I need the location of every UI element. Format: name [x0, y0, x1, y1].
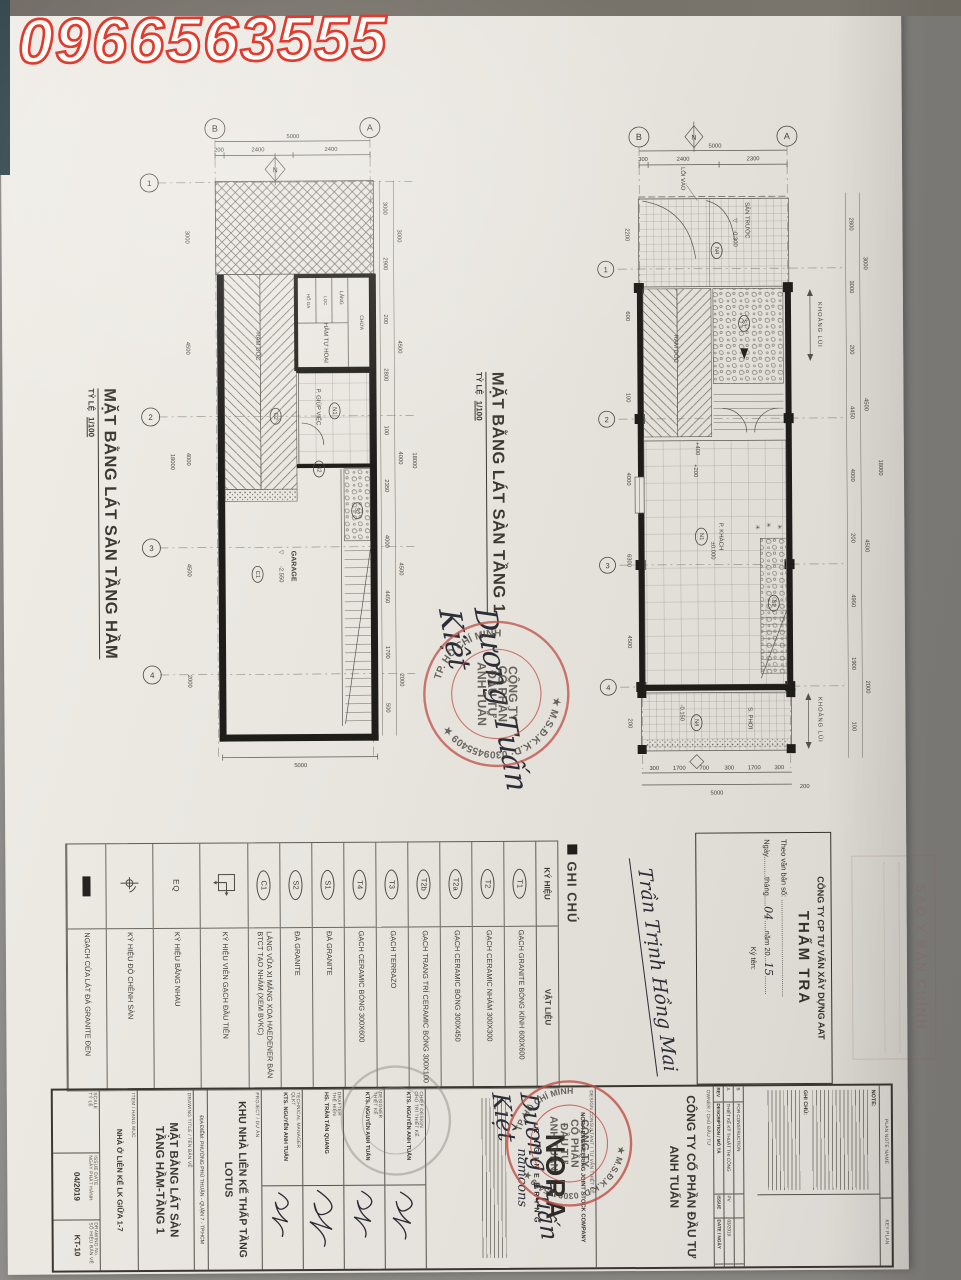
svg-text:4500: 4500	[863, 539, 869, 552]
signature-rows: CHIEF DESIGNCHỦ TRÌ THIẾT KẾKTS. NGUYỄN …	[261, 1088, 426, 1269]
legend-row: T1GẠCH GRANITE BÓNG KÍNH 600X600	[503, 842, 537, 1088]
svg-text:RAM DỐC: RAM DỐC	[672, 335, 679, 364]
svg-text:+200: +200	[692, 464, 698, 477]
legend-row: KÝ HIỆU VIÊN GẠCH ĐẦU TIÊN	[199, 843, 249, 1089]
svg-text:3000: 3000	[183, 231, 189, 244]
svg-text:100: 100	[624, 393, 630, 403]
svg-text:300: 300	[649, 766, 659, 772]
svg-text:2400: 2400	[252, 147, 265, 153]
north-arrow-icon: N	[265, 153, 285, 185]
svg-text:2000: 2000	[398, 674, 404, 687]
svg-text:4: 4	[150, 671, 155, 680]
svg-text:A: A	[784, 131, 790, 141]
scale-date-number-row: SCALETỶ LỆ ISSUE DATENGÀY PHÁT HÀNH 04/2…	[53, 1090, 100, 1270]
svg-text:4500: 4500	[863, 398, 869, 411]
svg-text:RAM DỐC: RAM DỐC	[254, 332, 261, 361]
drawing-title-label: DRAWING TITLE / TÊN BẢN VẼ	[184, 1090, 194, 1270]
svg-text:SÂN TRƯỚC: SÂN TRƯỚC	[743, 202, 750, 239]
svg-text:1: 1	[147, 179, 152, 188]
svg-text:KHOẢNG LÙI: KHOẢNG LÙI	[816, 697, 823, 743]
key-plan-label: KEY PLAN	[880, 1198, 891, 1265]
ghichu-text-lines	[766, 1090, 801, 1190]
basement-right-dims: 3000290020028001002350400044501700500	[381, 202, 390, 713]
svg-text:2400: 2400	[677, 157, 690, 163]
svg-text:18000: 18000	[877, 459, 883, 475]
svg-text:1900: 1900	[850, 657, 856, 670]
plan-note-name-label: PLAN NOTE NAME	[880, 1085, 892, 1198]
svg-text:2000: 2000	[864, 681, 870, 694]
north-arrow-icon: N	[685, 122, 703, 152]
director-signature-titleblock: Dương Tuấn Kiệt	[495, 1092, 556, 1272]
svg-text:N: N	[691, 135, 696, 142]
sign-row: CHIEF DESIGNCHỦ TRÌ THIẾT KẾKTS. NGUYỄN …	[384, 1088, 426, 1268]
setback-note-1: KHOẢNG LÙI	[807, 289, 823, 361]
drawing-title-2: TẦNG HẦM-TẦNG 1	[153, 1090, 166, 1270]
floor1-plan-svg: B A 1 2 3 4 N 5000 300 2400 2300	[593, 107, 909, 809]
svg-text:HỐ GA: HỐ GA	[306, 294, 312, 309]
reviewer-company: CÔNG TY CP TƯ VẤN XÂY DỰNG AAT	[815, 839, 826, 1077]
svg-text:S. PHƠI: S. PHƠI	[746, 707, 752, 730]
svg-text:2000: 2000	[186, 675, 192, 688]
floor1-top-dims: 300 2400 2300	[638, 156, 759, 163]
photo-of-drawing: B A 1 2 3 4 N 5000 200 2400 2400	[0, 0, 961, 1280]
svg-text:4000: 4000	[397, 452, 403, 465]
svg-text:4500: 4500	[626, 635, 632, 648]
project-name-1: KHU NHÀ LIÊN KẾ THẤP TẦNG	[236, 1089, 249, 1269]
front-yard: LỐI VÀO SÂN TRƯỚC -0.300 ▽ N4	[638, 167, 789, 288]
item-label: ITEM / HẠNG MỤC	[128, 1090, 138, 1270]
svg-text:4500: 4500	[398, 563, 404, 576]
svg-text:N: N	[273, 167, 278, 174]
svg-text:4950: 4950	[850, 594, 856, 607]
svg-text:2400: 2400	[325, 147, 338, 153]
floor1-right-dims: 280030002004450400020049501900100	[847, 218, 856, 732]
svg-text:B: B	[636, 132, 642, 142]
garage-room: GARAGE -2.550 ▽ C1	[252, 550, 297, 583]
svg-text:-0.150: -0.150	[678, 705, 684, 721]
svg-text:4450: 4450	[849, 406, 855, 419]
svg-text:4500: 4500	[396, 341, 402, 354]
svg-text:300: 300	[774, 765, 784, 771]
basement-ramp: RAM DỐC C2	[224, 274, 297, 501]
svg-text:P. KHÁCH: P. KHÁCH	[717, 523, 724, 551]
tham-tra-line1: Theo văn bản số: .......................…	[779, 839, 789, 1077]
basement-right-dims2: 30004500400045002000	[395, 230, 404, 687]
svg-text:100: 100	[383, 425, 389, 435]
note-text-lines	[810, 1090, 869, 1190]
svg-text:1700: 1700	[748, 765, 761, 771]
paper-sheet: B A 1 2 3 4 N 5000 200 2400 2400	[0, 0, 961, 1280]
legend-row: T3GẠCH TERRAZO	[375, 842, 409, 1088]
legend-title: GHI CHÚ	[558, 840, 589, 1090]
svg-text:B: B	[212, 124, 218, 134]
svg-text:3000: 3000	[395, 230, 401, 243]
svg-text:200: 200	[626, 719, 632, 729]
svg-text:N4: N4	[693, 719, 699, 727]
drawing-title-1: MẶT BẰNG LÁT SÀN	[167, 1090, 180, 1270]
legend-row: T2bGẠCH TRANG TRÍ CERAMIC BÓNG 300X100	[407, 842, 441, 1088]
svg-text:▽: ▽	[277, 550, 283, 555]
legend-row: T2GẠCH CERAMIC NHÁM 300X300	[471, 842, 505, 1088]
pavement-hatch	[215, 181, 374, 275]
location-line: ĐỊA ĐIỂM: PHƯỜNG PHÚ THUẬN - QUẬN 7 - TP…	[193, 1090, 208, 1270]
svg-text:3000: 3000	[848, 280, 854, 293]
svg-text:2200: 2200	[623, 228, 629, 241]
septic-tank: HỐ GA LỌC LẮNG HẦM TỰ HOẠI CHỨA	[296, 276, 374, 369]
basement-left-dims: 30004500400045002000	[183, 231, 192, 688]
svg-text:A: A	[367, 123, 373, 133]
svg-text:4500: 4500	[186, 564, 192, 577]
svg-text:4000: 4000	[849, 469, 855, 482]
legend-col-material: VẬT LIỆU	[537, 927, 559, 1088]
revision-table: BFOR CONSTRUCTIONATHIẾT KẾ KỸ THUẬT THI …	[713, 1086, 744, 1266]
svg-text:4000: 4000	[383, 535, 389, 548]
svg-text:5000: 5000	[294, 763, 307, 769]
basement-plan-svg: B A 1 2 3 4 N 5000 200 2400 2400	[127, 110, 461, 802]
svg-text:CHỨA: CHỨA	[358, 315, 365, 331]
svg-text:1700: 1700	[673, 766, 686, 772]
svg-text:300: 300	[638, 157, 648, 163]
floor-level-icon	[118, 875, 140, 897]
svg-text:2350: 2350	[383, 479, 389, 492]
legend-row: NGẠCH CỬA LÁT ĐÁ GRANITE ĐEN	[66, 844, 107, 1090]
svg-text:HẦM TỰ HOẠI: HẦM TỰ HOẠI	[322, 323, 329, 363]
first-tile-icon	[211, 872, 237, 898]
sign-row: TECHNICAL MANAGERQLKTKTS. NGUYỄN ANH TUẤ…	[261, 1089, 303, 1269]
svg-text:4000: 4000	[185, 453, 191, 466]
entry-stair: S1	[713, 288, 784, 432]
signature-squiggle	[309, 1186, 343, 1264]
item-section: ITEM / HẠNG MỤC NHÀ Ở LIÊN KẾ LK GIỮA 1-…	[99, 1090, 138, 1270]
legend-row: S1ĐÁ GRANITE	[311, 843, 345, 1089]
drying-yard: S. PHƠI N4 -0.150	[637, 688, 795, 754]
project-label: PROJECT / DỰ ÁN	[252, 1089, 262, 1269]
svg-text:4: 4	[606, 683, 610, 692]
svg-text:500: 500	[384, 703, 390, 713]
svg-text:S2: S2	[770, 600, 776, 607]
legend-col-symbol: KÝ HIỆU	[536, 842, 558, 927]
svg-text:300: 300	[724, 765, 734, 771]
owner-name-2: ANH TUẤN	[667, 1087, 682, 1267]
svg-text:N4: N4	[713, 247, 719, 255]
svg-text:3: 3	[605, 561, 609, 570]
ghichu-header: GHI CHÚ:	[802, 1090, 809, 1190]
title-block: PLAN NOTE NAME KEY PLAN NOTE: GHI CHÚ:	[15, 1083, 894, 1272]
basement-plan-title: MẶT BẰNG LÁT SÀN TẦNG HẦM TỶ LỆ1/100	[74, 388, 120, 718]
project-name-2: LOTUS	[222, 1090, 235, 1270]
sign-label: Ký tên:	[748, 839, 758, 1077]
svg-text:18000: 18000	[169, 454, 175, 470]
phone-watermark: 0966563555	[18, 2, 389, 78]
svg-text:±0.000: ±0.000	[709, 542, 715, 560]
svg-text:18000: 18000	[411, 452, 417, 468]
legend-row: S2ĐÁ GRANITE	[279, 843, 313, 1089]
svg-text:200: 200	[214, 148, 224, 154]
owner-name-1: CÔNG TY CỔ PHẦN ĐẦU TƯ	[684, 1087, 699, 1267]
tham-tra-box: CÔNG TY CP TƯ VẤN XÂY DỰNG AAT THẨM TRA …	[695, 832, 833, 1085]
item-value: NHÀ Ở LIÊN KẾ LK GIỮA 1-7	[115, 1090, 125, 1270]
svg-text:1700: 1700	[384, 646, 390, 659]
basement-top-dims: 200 2400 2400	[214, 147, 337, 154]
svg-text:100: 100	[851, 721, 857, 731]
floor1-ramp: RAM DỐC	[643, 289, 712, 437]
svg-text:200: 200	[800, 784, 810, 790]
legend: GHI CHÚ KÝ HIỆU VẬT LIỆU T1GẠCH GRANITE …	[37, 840, 589, 1093]
director-signature-mid: Dương Tuấn Kiệt	[436, 598, 558, 851]
svg-text:S1: S1	[741, 320, 747, 327]
svg-text:200: 200	[382, 314, 388, 324]
svg-text:LẮNG: LẮNG	[338, 291, 346, 305]
svg-text:S2: S2	[315, 465, 321, 472]
svg-text:-0.300: -0.300	[732, 230, 738, 246]
legend-table: KÝ HIỆU VẬT LIỆU T1GẠCH GRANITE BÓNG KÍN…	[65, 841, 560, 1092]
svg-text:C1: C1	[254, 571, 260, 578]
tham-tra-title: THẨM TRA	[794, 839, 812, 1077]
svg-text:2300: 2300	[747, 156, 760, 162]
svg-text:3000: 3000	[381, 202, 387, 215]
svg-text:✳: ✳	[777, 524, 782, 531]
svg-text:2: 2	[148, 413, 153, 422]
floor1-right-dims2: 3000450045002000	[862, 257, 871, 694]
note-header: NOTE:	[870, 1090, 877, 1190]
svg-text:2800: 2800	[847, 218, 853, 231]
basement-stair: S2	[341, 469, 372, 726]
svg-text:N1: N1	[698, 533, 704, 540]
svg-text:4500: 4500	[184, 342, 190, 355]
legend-row: T2aGẠCH CERAMIC BÓNG 300X450	[439, 842, 473, 1088]
svg-text:✳: ✳	[755, 524, 760, 531]
svg-text:▽: ▽	[731, 218, 737, 223]
svg-text:5000: 5000	[709, 144, 722, 150]
svg-text:4000: 4000	[625, 473, 631, 486]
svg-text:6300: 6300	[625, 554, 631, 567]
signature-squiggle	[350, 1186, 384, 1264]
consultant-label: DESIGN CONSULTANT / TƯ VẤN THIẾT KẾ	[586, 1087, 596, 1267]
svg-text:N1: N1	[331, 407, 337, 414]
floor1-stair: S2	[760, 538, 787, 678]
sign-row: DRAFTERTHỂ HIỆNHS. TRẦN TẤN QUANG	[302, 1089, 344, 1269]
sign-row: DESIGNERTHIẾT KẾKTS. NGUYỄN ANH TUẤN	[343, 1089, 385, 1269]
svg-text:1: 1	[604, 265, 608, 274]
svg-text:5000: 5000	[286, 134, 299, 140]
approver-signature: Trần Trịnh Hồng Mai	[601, 857, 694, 1084]
svg-text:+400: +400	[694, 442, 700, 455]
svg-text:200: 200	[849, 533, 855, 543]
legend-row: EQKÝ HIỆU BẰNG NHAU	[152, 844, 201, 1090]
svg-text:5000: 5000	[710, 791, 723, 797]
svg-text:P. GIÚP VIỆC: P. GIÚP VIỆC	[314, 389, 322, 427]
owner-section: BFOR CONSTRUCTIONATHIẾT KẾ KỸ THUẬT THI …	[595, 1086, 744, 1267]
floor1-left-dims: 2200600100400063004500200	[623, 228, 632, 728]
legend-row: C1LÁNG VỮA XI MĂNG XOA HAEDENER BẢN BTCT…	[247, 843, 281, 1089]
setback-note-2: KHOẢNG LÙI	[805, 693, 823, 749]
svg-text:4450: 4450	[384, 590, 390, 603]
svg-text:LỌC: LỌC	[323, 296, 328, 306]
project-section: PROJECT / DỰ ÁN KHU NHÀ LIÊN KẾ THẤP TẦN…	[207, 1089, 262, 1269]
issue-date: 04/2019	[72, 1155, 81, 1217]
svg-text:200: 200	[848, 345, 854, 355]
owner-label: OWNER / CHỦ ĐẦU TƯ	[704, 1087, 714, 1267]
svg-text:2: 2	[605, 415, 609, 424]
signature-squiggle	[268, 1186, 302, 1264]
svg-text:KHOẢNG LÙI: KHOẢNG LÙI	[816, 302, 823, 348]
drawing-number: KT-10	[73, 1222, 82, 1268]
svg-text:3000: 3000	[862, 257, 868, 270]
svg-text:2800: 2800	[382, 368, 388, 381]
notes-section: PLAN NOTE NAME KEY PLAN NOTE: GHI CHÚ:	[743, 1085, 892, 1266]
drawing-title-section: DRAWING TITLE / TÊN BẢN VẼ MẶT BẰNG LÁT …	[137, 1090, 194, 1270]
svg-text:2900: 2900	[382, 257, 388, 270]
floor1-bottom-dims: 30017007003001700300	[649, 765, 784, 772]
svg-text:700: 700	[699, 766, 709, 772]
svg-text:LỐI VÀO: LỐI VÀO	[679, 167, 686, 191]
maid-room: P. GIÚP VIỆC N1 S2	[296, 369, 376, 477]
svg-text:C2: C2	[272, 413, 278, 420]
tham-tra-line2: Ngày..........tháng.....04.....năm 20...…	[761, 839, 775, 1077]
svg-text:S2: S2	[354, 507, 360, 514]
consultant-name: NORA ENGINEERING JOINT STOCK COMPANY	[578, 1087, 587, 1267]
svg-text:3: 3	[149, 544, 154, 553]
signature-squiggle	[391, 1185, 425, 1263]
sao-y-stamp: SAO Y BẢN CHÍNH	[851, 847, 944, 1060]
legend-row: T4GẠCH CERAMIC BÓNG 300X600	[343, 843, 377, 1089]
svg-text:✳: ✳	[766, 522, 771, 529]
key-plan-box	[757, 1194, 879, 1267]
legend-row: KÝ HIỆU ĐỘ CHÊNH SÀN	[105, 844, 154, 1090]
svg-text:600: 600	[624, 311, 630, 321]
photo-left-edge	[0, 0, 10, 175]
svg-text:-2.550: -2.550	[278, 566, 284, 582]
svg-text:GARAGE: GARAGE	[289, 551, 296, 582]
